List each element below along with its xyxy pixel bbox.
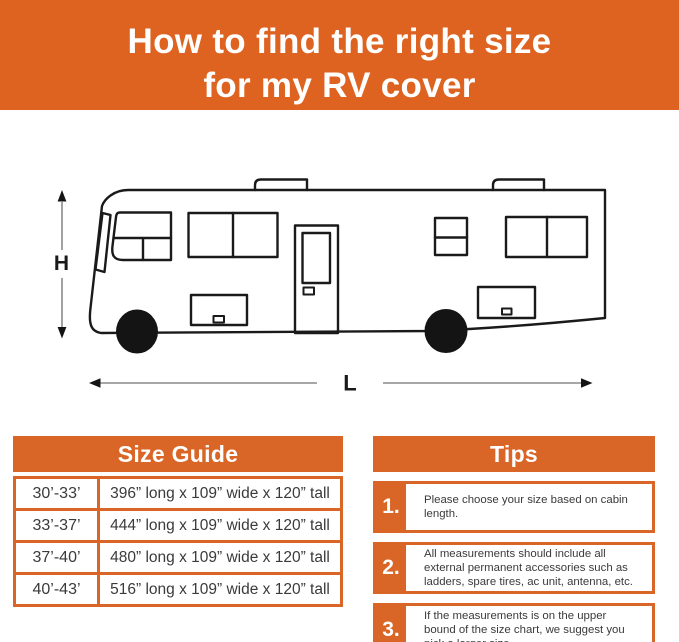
title-line-2: for my RV cover xyxy=(203,64,475,108)
title-line-1: How to find the right size xyxy=(128,20,552,64)
front-wheel xyxy=(116,310,158,354)
rv-outline xyxy=(90,180,605,334)
table-cell-range: 30’-33’ xyxy=(16,479,97,508)
height-label: H xyxy=(54,252,69,275)
infographic-page: How to find the right size for my RV cov… xyxy=(0,0,679,642)
table-cell-dimensions: 480” long x 109” wide x 120” tall xyxy=(100,543,340,572)
arrow-right-icon xyxy=(581,378,593,387)
tip-number: 2. xyxy=(376,545,406,591)
tip-number: 1. xyxy=(376,484,406,530)
tips-panel: Tips 1. Please choose your size based on… xyxy=(373,436,655,642)
length-label: L xyxy=(343,371,356,396)
tip-text: Please choose your size based on cabin l… xyxy=(406,484,652,530)
table-cell-range: 33’-37’ xyxy=(16,511,97,540)
height-dimension-arrow: H xyxy=(54,190,69,339)
tip-number: 3. xyxy=(376,606,406,642)
size-guide-title: Size Guide xyxy=(13,436,343,472)
arrow-left-icon xyxy=(89,378,101,387)
table-cell-dimensions: 444” long x 109” wide x 120” tall xyxy=(100,511,340,540)
rear-wheel xyxy=(425,309,468,353)
size-guide-panel: Size Guide 30’-33’ 396” long x 109” wide… xyxy=(13,436,343,607)
arrow-up-icon xyxy=(58,190,67,202)
table-cell-dimensions: 516” long x 109” wide x 120” tall xyxy=(100,575,340,604)
roof-vent-front xyxy=(255,180,307,191)
rv-diagram: H xyxy=(0,110,679,420)
tip-card-3: 3. If the measurements is on the upper b… xyxy=(373,603,655,642)
tip-text: If the measurements is on the upper boun… xyxy=(406,606,652,642)
roof-vent-rear xyxy=(493,180,544,191)
arrow-down-icon xyxy=(58,327,67,339)
tip-text: All measurements should include all exte… xyxy=(406,545,652,591)
table-cell-range: 40’-43’ xyxy=(16,575,97,604)
length-dimension-arrow: L xyxy=(89,371,593,396)
table-cell-range: 37’-40’ xyxy=(16,543,97,572)
tips-title: Tips xyxy=(373,436,655,472)
title-banner: How to find the right size for my RV cov… xyxy=(0,0,679,110)
table-cell-dimensions: 396” long x 109” wide x 120” tall xyxy=(100,479,340,508)
size-guide-table: 30’-33’ 396” long x 109” wide x 120” tal… xyxy=(13,476,343,607)
tip-card-2: 2. All measurements should include all e… xyxy=(373,542,655,594)
tip-card-1: 1. Please choose your size based on cabi… xyxy=(373,481,655,533)
